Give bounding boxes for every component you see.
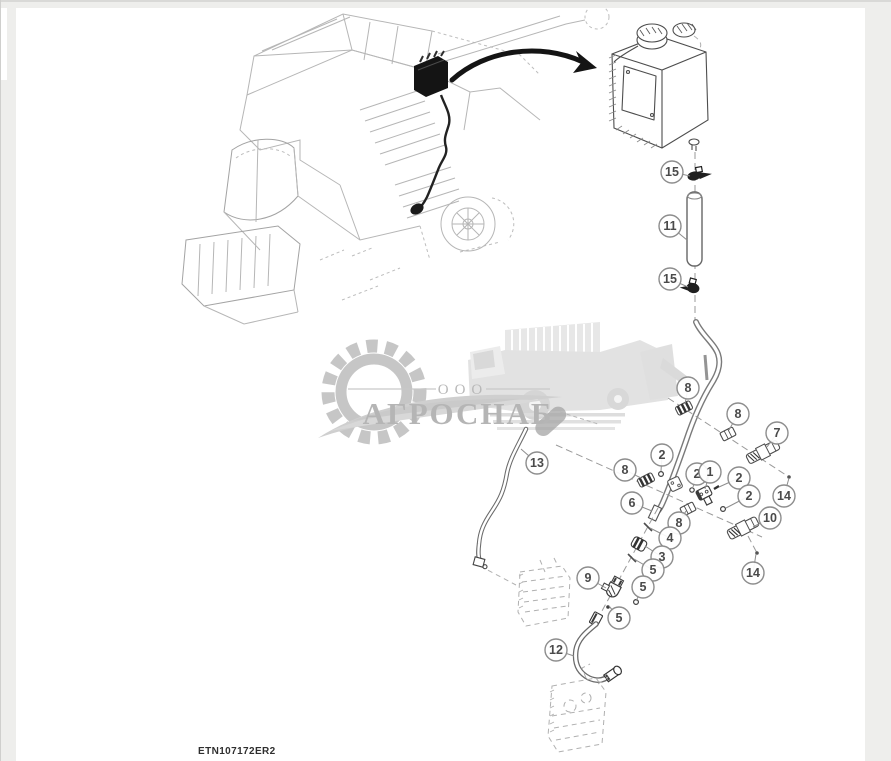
clamp-15-lower [679, 276, 701, 295]
callout-15: 15 [659, 268, 688, 290]
svg-text:2: 2 [659, 448, 666, 462]
svg-text:12: 12 [549, 643, 563, 657]
svg-text:5: 5 [650, 563, 657, 577]
svg-text:14: 14 [777, 489, 791, 503]
svg-text:8: 8 [685, 381, 692, 395]
parts-diagram-page: ООО АГРОСНАБ [16, 8, 865, 761]
svg-text:8: 8 [622, 463, 629, 477]
washer-4 [644, 523, 652, 531]
callout-15: 15 [661, 161, 690, 183]
svg-text:13: 13 [530, 456, 544, 470]
highlighted-reservoir-icon [414, 51, 448, 97]
drawing-number: ETN107172ER2 [198, 746, 276, 757]
svg-text:5: 5 [640, 580, 647, 594]
callout-2: 2 [651, 444, 673, 471]
valve-sketch-lower [548, 664, 608, 752]
ball-2a [659, 472, 664, 477]
svg-text:2: 2 [746, 489, 753, 503]
svg-text:1: 1 [707, 465, 714, 479]
svg-text:11: 11 [663, 219, 676, 233]
watermark: ООО АГРОСНАБ [318, 322, 707, 439]
combine-sketch [182, 8, 609, 324]
svg-text:8: 8 [735, 407, 742, 421]
svg-text:15: 15 [665, 165, 679, 179]
pin-2c [714, 486, 719, 489]
callout-11: 11 [659, 215, 687, 240]
svg-text:8: 8 [676, 516, 683, 530]
clamp-15-upper [686, 165, 712, 182]
svg-text:14: 14 [746, 566, 760, 580]
valve-sketch-upper [518, 558, 570, 626]
fitting-8c [637, 472, 655, 487]
callout-14: 14 [742, 554, 764, 584]
callout-4: 4 [650, 527, 681, 549]
tank-drawing [609, 23, 708, 151]
svg-text:5: 5 [616, 611, 623, 625]
fitting-8a [675, 400, 693, 415]
callout-7: 7 [766, 422, 788, 447]
callout-6: 6 [621, 492, 652, 514]
axis-dashed-10 [748, 536, 757, 553]
svg-text:2: 2 [736, 471, 743, 485]
window-left-edge [0, 0, 1, 761]
callout-5: 5 [632, 576, 654, 601]
callout-8: 8 [677, 377, 699, 404]
callout-12: 12 [545, 639, 574, 661]
svg-text:10: 10 [763, 511, 777, 525]
ball-2d [721, 507, 726, 512]
callout-9: 9 [577, 567, 606, 589]
left-scroll-notch [1, 8, 7, 80]
callout-2: 2 [726, 485, 760, 508]
svg-text:6: 6 [629, 496, 636, 510]
callout-13: 13 [521, 449, 548, 474]
callout-8: 8 [727, 403, 749, 430]
svg-text:7: 7 [774, 426, 781, 440]
ball-2b [690, 488, 694, 492]
callout-5: 5 [608, 606, 630, 629]
fitting-3 [630, 536, 648, 552]
watermark-org-name: АГРОСНАБ [363, 396, 554, 431]
svg-text:15: 15 [663, 272, 677, 286]
svg-text:9: 9 [585, 571, 592, 585]
parts-diagram-image: ООО АГРОСНАБ [16, 8, 865, 761]
callout-8: 8 [614, 459, 641, 481]
fitting-8b [720, 427, 737, 441]
callout-1: 1 [699, 461, 721, 489]
fitting-10 [726, 515, 760, 541]
callout-14: 14 [773, 478, 795, 507]
svg-text:4: 4 [667, 531, 674, 545]
hose-13 [473, 429, 526, 569]
tube-11 [687, 192, 702, 266]
locator-arrow-icon [452, 51, 597, 80]
